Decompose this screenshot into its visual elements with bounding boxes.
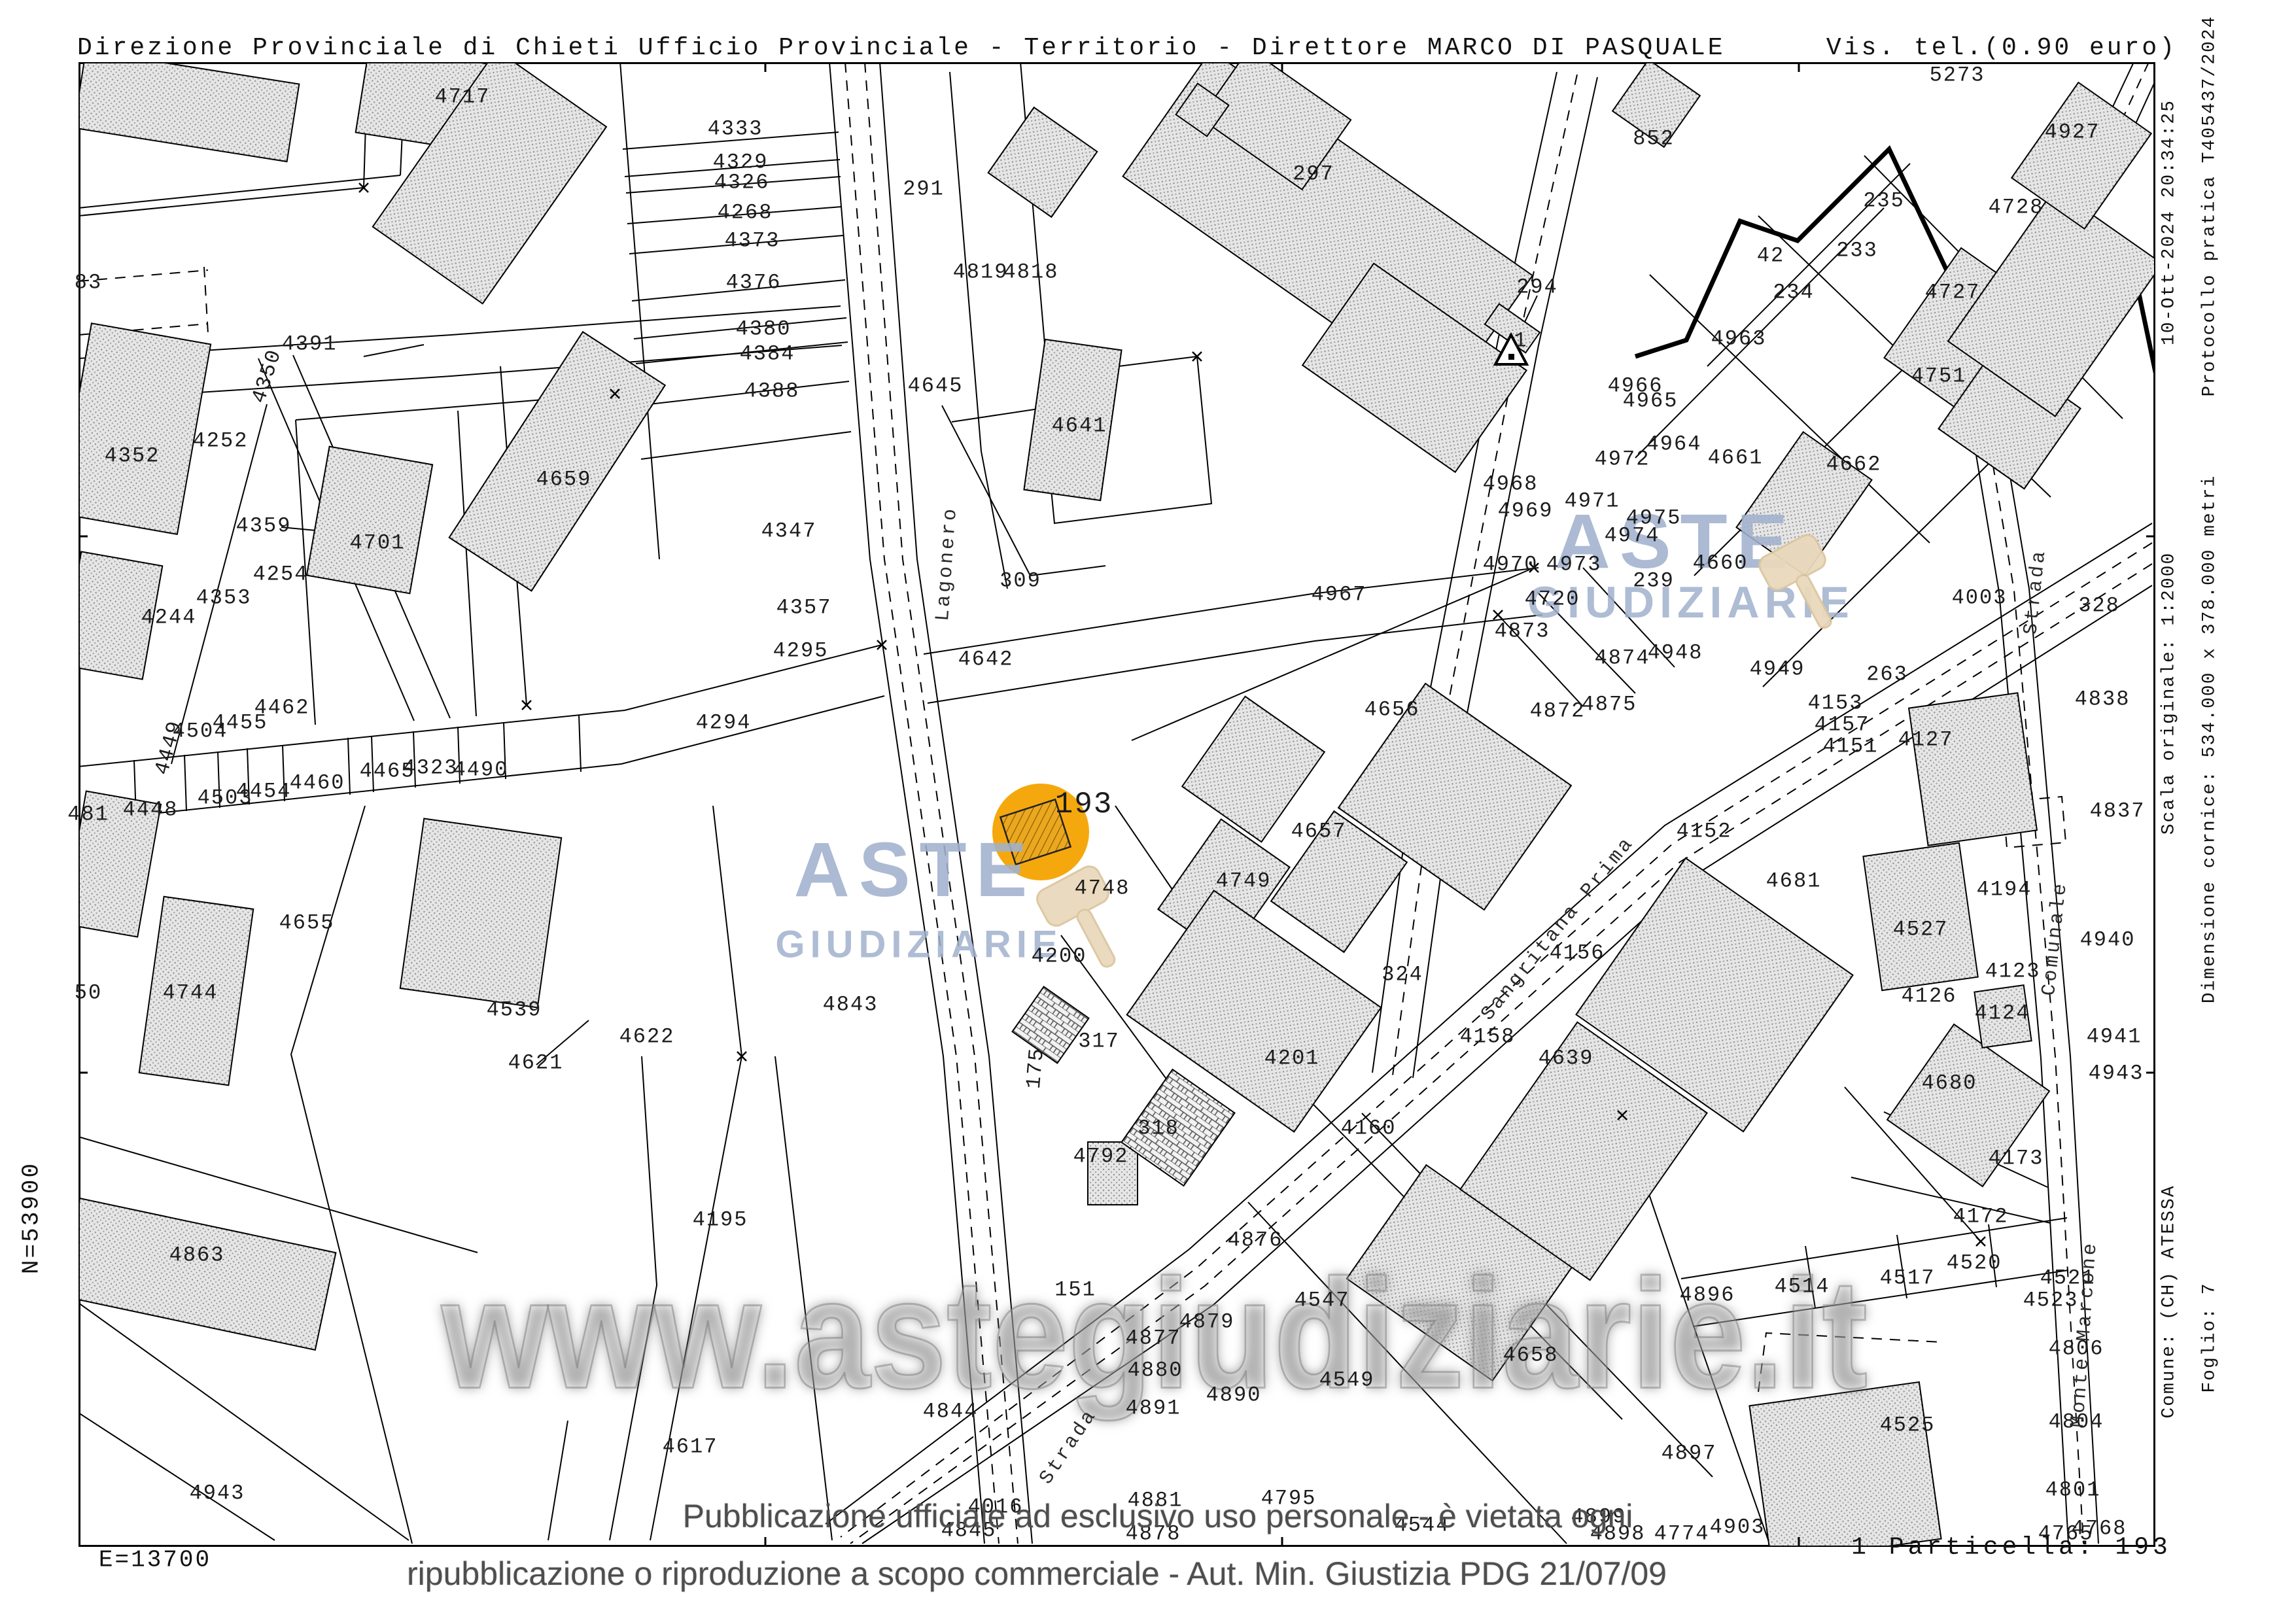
parcel-label: 4838 (2075, 687, 2131, 712)
parcel-label: 4728 (1989, 196, 2044, 220)
parcel-label: 4970 (1483, 553, 1539, 577)
parcel-label: 309 (1000, 569, 1041, 593)
parcel-label: 4792 (1073, 1145, 1129, 1169)
parcel-label: 4359 (236, 514, 292, 538)
sidebar-frame-size: Dimensione cornice: 534.000 x 378.000 me… (2200, 475, 2220, 1004)
parcel-label: 4645 (908, 374, 964, 398)
parcel-label: 4879 (1179, 1310, 1235, 1334)
parcel-label: 175 (1022, 1047, 1049, 1090)
parcel-label: 4656 (1365, 698, 1420, 722)
parcel-label: 4200 (1032, 944, 1087, 969)
parcel-label: 4333 (708, 117, 763, 141)
parcel-label: 4969 (1498, 499, 1554, 523)
parcel-label: 263 (1866, 663, 1908, 687)
parcel-label: 4880 (1128, 1358, 1183, 1383)
parcel-label: 4294 (696, 711, 752, 735)
parcel-label: 4972 (1595, 447, 1650, 472)
parcel-label: 42 (1757, 244, 1784, 268)
parcel-label: 4659 (536, 468, 592, 492)
parcel-label: 4622 (619, 1025, 675, 1049)
parcel-label: 4448 (123, 798, 179, 822)
coordinate-north-label: N=53900 (18, 1162, 45, 1274)
gavel-icon (1727, 517, 1884, 641)
parcel-label: 4655 (279, 911, 335, 935)
parcel-label: 4896 (1680, 1283, 1735, 1307)
parcel-label: 234 (1773, 281, 1815, 305)
parcel-label: 4539 (487, 998, 542, 1022)
parcel-label: 233 (1836, 239, 1878, 263)
parcel-label: 4903 (1710, 1515, 1765, 1540)
parcel-label: 4194 (1977, 878, 2032, 902)
parcel-label: 4547 (1295, 1289, 1350, 1313)
parcel-label: 4151 (1823, 735, 1879, 759)
parcel-label: 4843 (823, 993, 878, 1017)
parcel-label: 4454 (236, 780, 292, 804)
parcel-label: 4658 (1503, 1343, 1559, 1368)
footer-dash: - (1128, 1600, 1141, 1609)
parcel-label: 291 (903, 177, 945, 201)
parcel-label: 4252 (193, 429, 249, 453)
parcel-label: 4126 (1902, 984, 1957, 1009)
parcel-label: 4801 (2045, 1478, 2101, 1502)
footer-notice-line2: ripubblicazione o riproduzione a scopo c… (407, 1555, 1667, 1593)
parcel-label: 4295 (773, 639, 829, 663)
parcel-label: 4641 (1052, 414, 1107, 438)
parcel-label: 4927 (2045, 120, 2100, 145)
parcel-label: 4876 (1228, 1228, 1283, 1253)
parcel-label: 4941 (2087, 1025, 2142, 1049)
parcel-label: 4875 (1582, 693, 1637, 717)
parcel-label: 4943 (190, 1481, 245, 1506)
parcel-label: 4751 (1911, 364, 1967, 389)
sidebar-protocol: Protocollo pratica T405437/2024 (2200, 16, 2220, 397)
parcel-label: 4657 (1291, 820, 1347, 844)
parcel-label: 4158 (1460, 1025, 1516, 1049)
parcel-label: 4872 (1530, 699, 1586, 723)
parcel-label: 4819 (953, 260, 1009, 285)
parcel-label: 324 (1382, 963, 1423, 987)
parcel-label: 4863 (169, 1243, 225, 1268)
parcel-label: 4949 (1750, 657, 1805, 682)
parcel-label: 4774 (1654, 1522, 1710, 1546)
sidebar-foglio: Foglio: 7 (2200, 1282, 2220, 1393)
parcel-label: 4268 (718, 201, 773, 225)
parcel-label: 4357 (776, 596, 832, 620)
parcel-label: 4373 (725, 229, 780, 253)
parcel-label: 4940 (2080, 928, 2136, 952)
parcel-label: 4003 (1952, 586, 2008, 610)
parcel-label: 852 (1633, 127, 1675, 151)
parcel-label: 4617 (663, 1435, 718, 1459)
parcel-label: 4352 (105, 444, 160, 468)
parcel-label: 4391 (282, 332, 338, 356)
parcel-label: 5273 (1930, 63, 1985, 88)
sidebar-comune: Comune: (CH) ATESSA (2159, 1185, 2180, 1418)
parcel-label: 4254 (253, 562, 309, 587)
parcel-label: 4744 (163, 981, 218, 1005)
footer-particella: 1 Particella: 193 (1851, 1534, 2172, 1562)
parcel-label: 317 (1078, 1029, 1120, 1054)
parcel-label: 4172 (1953, 1205, 2009, 1229)
parcel-label: 4525 (1880, 1413, 1936, 1438)
parcel-label: 294 (1516, 275, 1558, 300)
parcel-label: 318 (1138, 1116, 1179, 1141)
parcel-label: 1 (1514, 329, 1527, 353)
parcel-label: 4639 (1539, 1047, 1594, 1071)
parcel-label: 4877 (1126, 1326, 1181, 1351)
parcel-label: 4963 (1711, 327, 1767, 351)
parcel-label: 4384 (740, 342, 795, 366)
parcel-label: 4727 (1925, 281, 1981, 305)
parcel-label: 4967 (1312, 583, 1367, 607)
parcel-label: 4964 (1646, 432, 1702, 457)
parcel-label: 4681 (1766, 869, 1822, 893)
parcel-label: 4195 (693, 1208, 748, 1232)
parcel-label: 328 (2078, 594, 2120, 618)
parcel-label: 4455 (213, 711, 268, 735)
parcel-label: 4662 (1826, 453, 1882, 477)
parcel-label: 4380 (736, 317, 791, 341)
parcel-label: 4844 (923, 1400, 979, 1424)
parcel-label: 4244 (141, 606, 197, 630)
parcel-label: 4621 (508, 1051, 564, 1075)
parcel-label: 4717 (435, 85, 491, 109)
parcel-label: 4660 (1693, 551, 1748, 576)
parcel-label: 4514 (1775, 1275, 1830, 1299)
parcel-label: 4701 (350, 531, 406, 555)
parcel-label: 4897 (1661, 1442, 1717, 1466)
parcel-label: 4661 (1708, 446, 1764, 470)
parcel-label: 4968 (1483, 472, 1539, 496)
footer-notice-line1: Pubblicazione ufficiale ad esclusivo uso… (683, 1497, 1633, 1535)
parcel-label: 4347 (761, 519, 817, 544)
parcel-label: 4720 (1525, 587, 1580, 612)
parcel-label: 4123 (1985, 960, 2041, 984)
parcel-label: 4748 (1075, 876, 1130, 901)
cadastral-map-page: Direzione Provinciale di Chieti Ufficio … (0, 0, 2296, 1609)
parcel-label: 4523 (2023, 1289, 2079, 1313)
parcel-label: 4490 (453, 758, 509, 782)
parcel-label: 4173 (1989, 1147, 2044, 1171)
parcel-label: 297 (1293, 162, 1334, 186)
parcel-label: 4127 (1898, 728, 1954, 752)
parcel-label: 4943 (2089, 1062, 2144, 1086)
parcel-label: 4749 (1216, 869, 1272, 893)
coordinate-east-label: E=13700 (99, 1547, 211, 1574)
parcel-label: 4376 (726, 271, 782, 295)
parcel-label: 4160 (1341, 1116, 1397, 1141)
parcel-label: 151 (1054, 1278, 1096, 1302)
parcel-label: 4874 (1595, 646, 1650, 670)
parcel-label: 4891 (1126, 1396, 1181, 1421)
parcel-label: 4549 (1319, 1368, 1375, 1393)
parcel-label: 4353 (196, 586, 252, 610)
parcel-label: 4201 (1264, 1047, 1320, 1071)
parcel-label: 4326 (714, 171, 770, 195)
parcel-label: 193 (1055, 787, 1113, 822)
parcel-label: 4323 (403, 756, 459, 780)
parcel-label: 4157 (1815, 713, 1870, 737)
parcel-label: 50 (75, 981, 102, 1005)
parcel-label: 4388 (744, 379, 800, 404)
sidebar-scale: Scala originale: 1:2000 (2159, 552, 2180, 835)
parcel-label: 4520 (1947, 1251, 2002, 1275)
parcel-label: 4460 (290, 771, 345, 795)
parcel-label: 4153 (1808, 691, 1864, 716)
parcel-label: 4527 (1893, 918, 1949, 942)
sidebar-date: 10-Ott-2024 20:34:25 (2159, 99, 2180, 345)
parcel-label: 4152 (1677, 820, 1732, 844)
watermark-aste-center: ASTE (794, 825, 1037, 914)
parcel-label: 4837 (2090, 799, 2146, 823)
parcel-label: 4971 (1565, 489, 1620, 513)
parcel-label: 4873 (1495, 619, 1550, 644)
parcel-label: 4890 (1206, 1383, 1262, 1408)
parcel-label: 4124 (1975, 1001, 2030, 1026)
parcel-label: 4680 (1922, 1071, 1977, 1096)
parcel-label: 4948 (1648, 641, 1703, 665)
parcel-label: 83 (75, 271, 102, 295)
parcel-label: 4517 (1880, 1266, 1936, 1290)
parcel-label: 4642 (958, 648, 1014, 672)
parcel-label: 4973 (1546, 553, 1602, 577)
parcel-label: 481 (67, 803, 109, 827)
parcel-label: 4975 (1626, 506, 1682, 530)
parcel-label: 4965 (1623, 389, 1679, 413)
parcel-label: 239 (1633, 569, 1675, 593)
parcel-label: 4818 (1003, 260, 1059, 285)
parcel-label: 235 (1863, 189, 1905, 213)
